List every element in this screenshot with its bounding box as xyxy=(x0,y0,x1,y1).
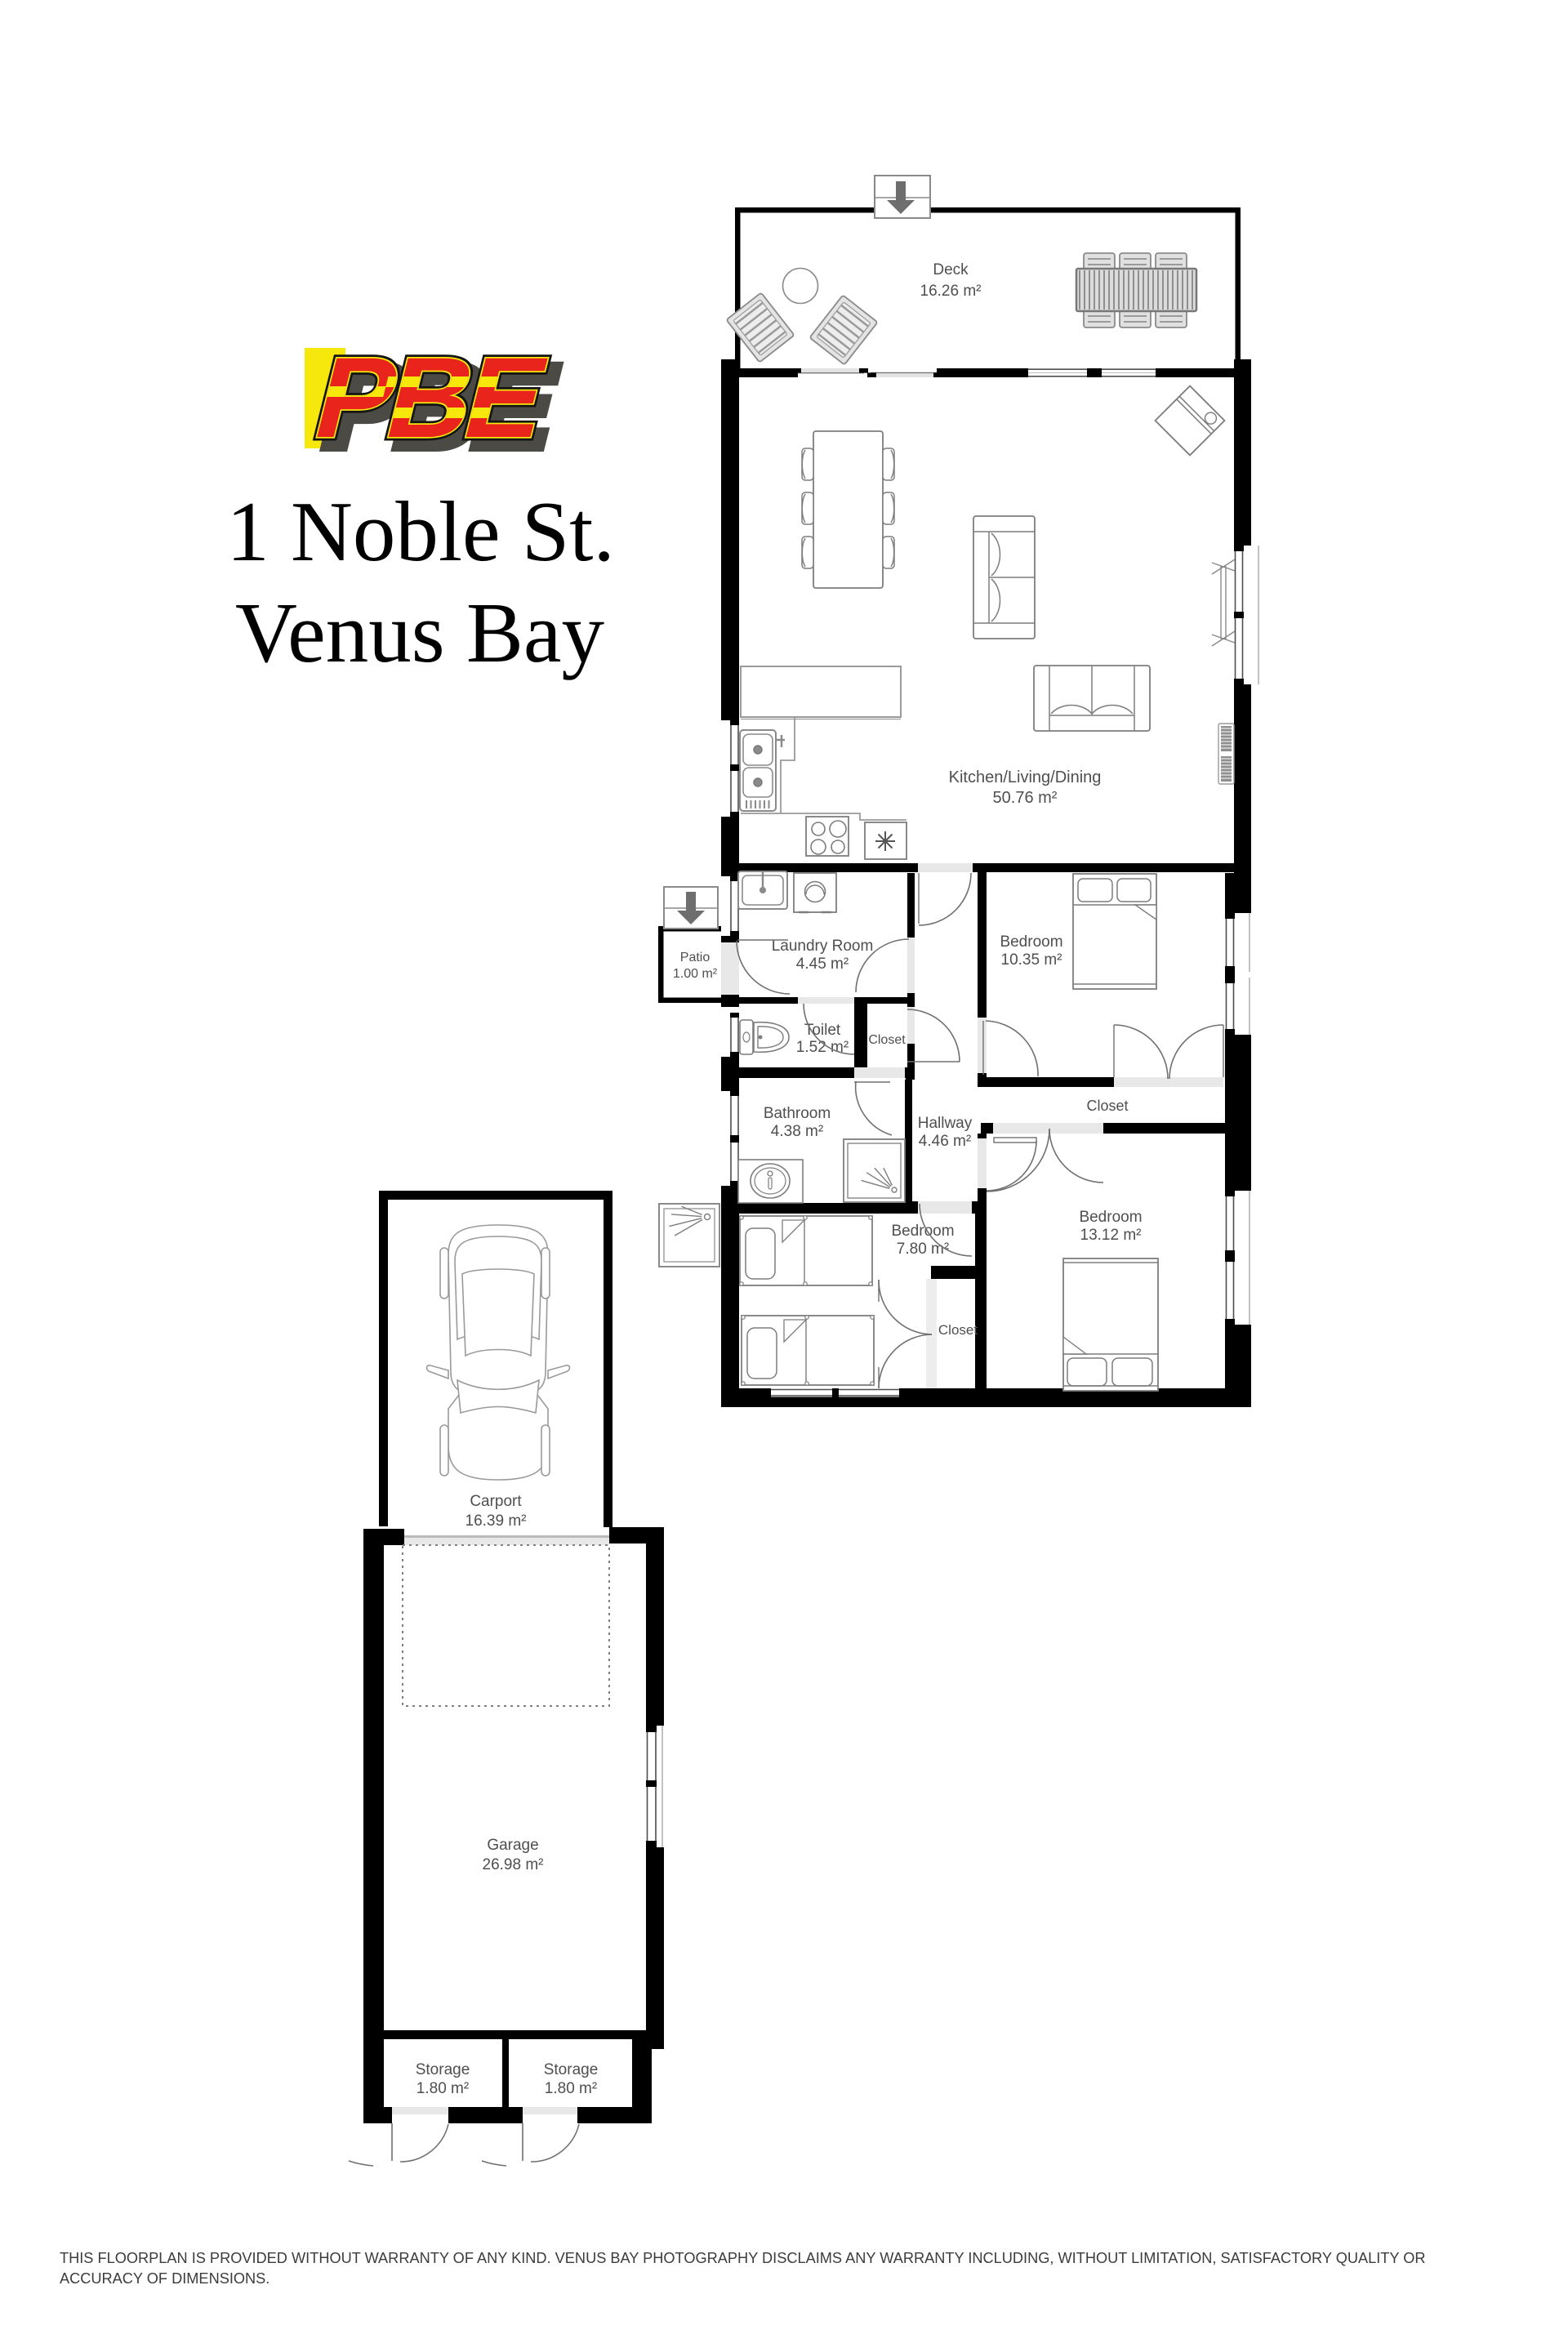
svg-text:1 Noble St.: 1 Noble St. xyxy=(226,483,614,579)
svg-text:Storage: Storage xyxy=(544,2061,599,2078)
svg-text:16.26 m²: 16.26 m² xyxy=(920,283,982,300)
svg-text:1.80 m²: 1.80 m² xyxy=(545,2080,597,2097)
svg-text:4.46 m²: 4.46 m² xyxy=(919,1133,971,1150)
svg-text:Closet: Closet xyxy=(1086,1098,1128,1114)
svg-text:10.35 m²: 10.35 m² xyxy=(1001,951,1062,969)
svg-text:4.38 m²: 4.38 m² xyxy=(771,1123,823,1140)
svg-text:50.76 m²: 50.76 m² xyxy=(993,789,1058,807)
svg-text:1.80 m²: 1.80 m² xyxy=(416,2080,469,2097)
svg-text:THIS FLOORPLAN IS PROVIDED WIT: THIS FLOORPLAN IS PROVIDED WITHOUT WARRA… xyxy=(60,2250,1426,2266)
svg-text:Deck: Deck xyxy=(933,261,969,278)
svg-text:1.52 m²: 1.52 m² xyxy=(796,1039,849,1056)
svg-text:Bathroom: Bathroom xyxy=(764,1105,831,1122)
svg-text:1.00 m²: 1.00 m² xyxy=(673,967,718,981)
svg-text:ACCURACY OF DIMENSIONS.: ACCURACY OF DIMENSIONS. xyxy=(60,2270,269,2287)
svg-text:Venus Bay: Venus Bay xyxy=(235,585,605,680)
svg-text:7.80 m²: 7.80 m² xyxy=(897,1241,949,1258)
svg-text:Closet: Closet xyxy=(868,1033,906,1047)
svg-text:PBE: PBE xyxy=(303,334,556,462)
svg-text:Storage: Storage xyxy=(416,2061,470,2078)
svg-text:Closet: Closet xyxy=(938,1322,978,1338)
svg-text:16.39 m²: 16.39 m² xyxy=(465,1512,527,1530)
svg-text:Garage: Garage xyxy=(487,1837,538,1854)
svg-text:26.98 m²: 26.98 m² xyxy=(483,1856,544,1873)
svg-text:Hallway: Hallway xyxy=(918,1115,973,1132)
svg-text:Kitchen/Living/Dining: Kitchen/Living/Dining xyxy=(949,768,1102,786)
svg-text:Bedroom: Bedroom xyxy=(891,1223,954,1240)
svg-text:13.12 m²: 13.12 m² xyxy=(1080,1227,1142,1244)
svg-text:Bedroom: Bedroom xyxy=(1000,933,1062,951)
svg-text:Toilet: Toilet xyxy=(804,1022,841,1039)
svg-text:4.45 m²: 4.45 m² xyxy=(796,955,849,973)
svg-text:Carport: Carport xyxy=(470,1493,522,1510)
svg-text:Bedroom: Bedroom xyxy=(1079,1209,1142,1226)
svg-text:Patio: Patio xyxy=(680,951,710,964)
